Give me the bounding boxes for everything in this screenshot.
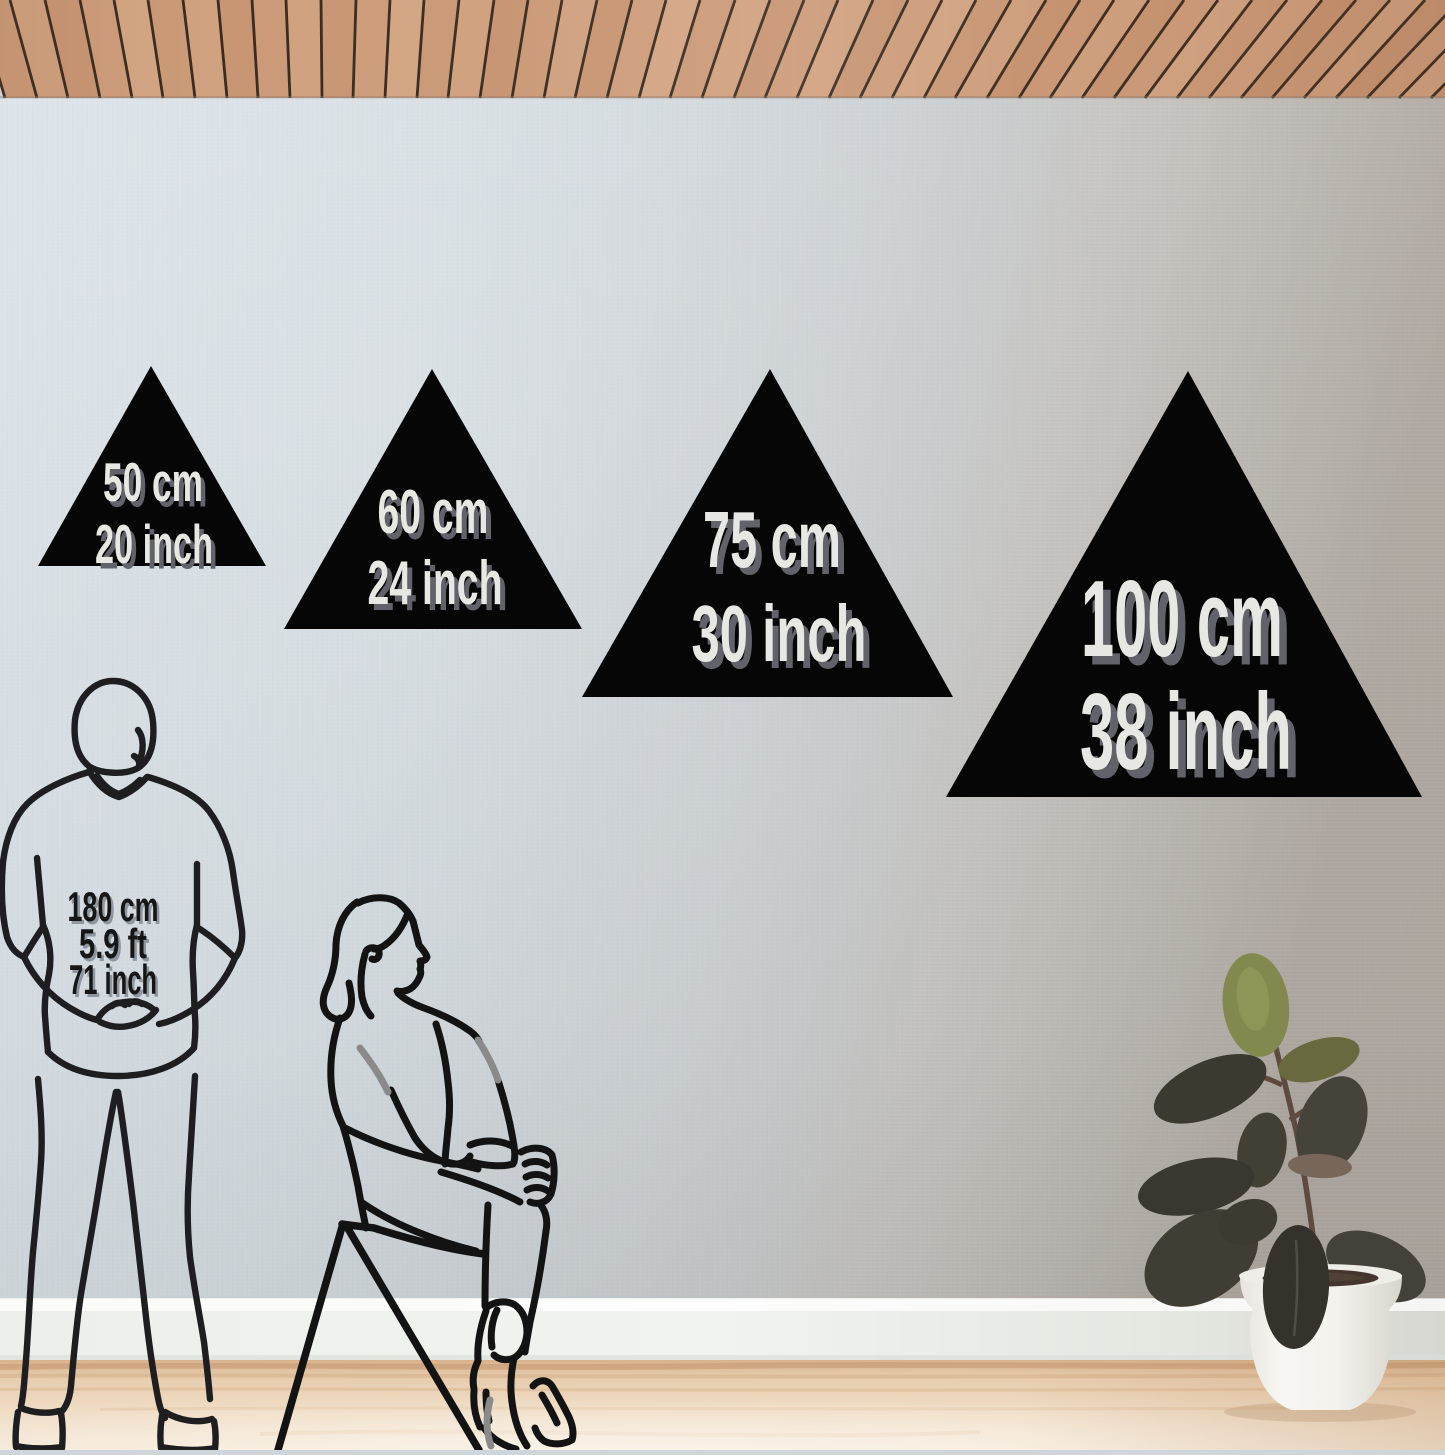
svg-text:75 cm: 75 cm <box>703 495 841 584</box>
svg-text:20 inch: 20 inch <box>95 513 213 575</box>
svg-text:38 inch: 38 inch <box>1080 671 1292 793</box>
svg-text:24 inch: 24 inch <box>368 549 503 618</box>
svg-text:71 inch: 71 inch <box>69 956 157 1003</box>
svg-text:60 cm: 60 cm <box>378 478 489 547</box>
svg-text:30 inch: 30 inch <box>692 589 867 678</box>
svg-text:100 cm: 100 cm <box>1081 558 1283 680</box>
svg-text:50 cm: 50 cm <box>103 451 203 513</box>
